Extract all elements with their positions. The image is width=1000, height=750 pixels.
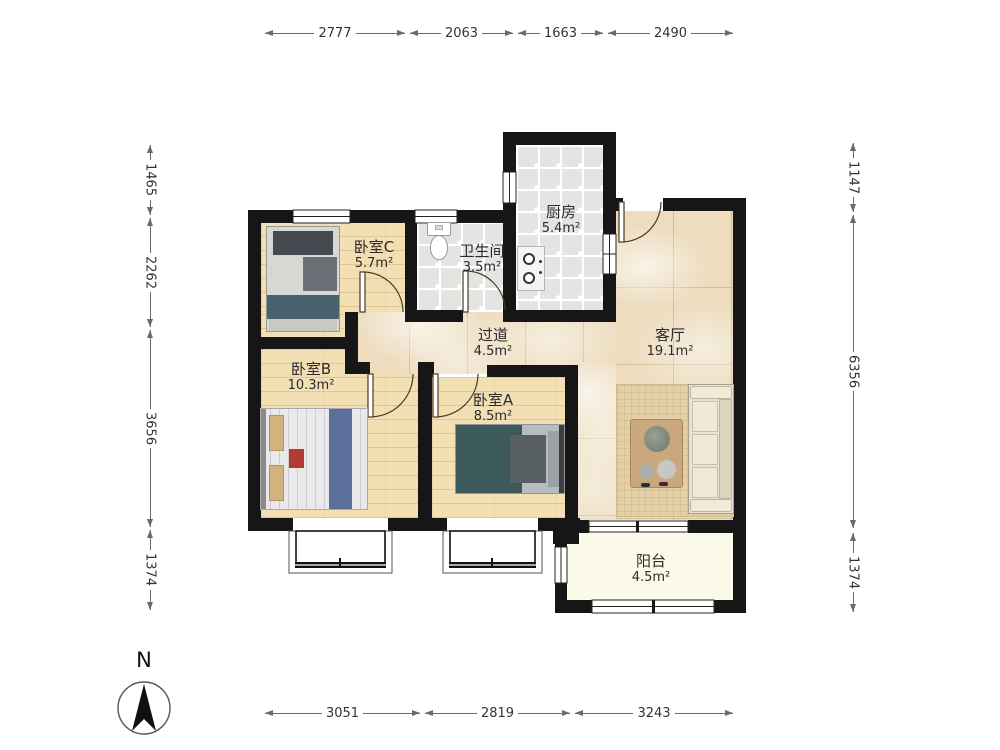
bay-windows-layer — [289, 531, 542, 573]
toilet — [427, 222, 451, 262]
sofa-cushion — [692, 401, 718, 432]
wall-segment — [733, 198, 746, 613]
wall-segment — [555, 531, 567, 547]
dimension-top-3: 1663 — [518, 26, 603, 40]
bed-runner — [329, 409, 352, 509]
wall-segment — [688, 520, 733, 533]
bed-bedroom-a — [455, 424, 565, 494]
room-name: 卫生间 — [459, 242, 504, 260]
compass-needle-icon — [132, 684, 156, 731]
toilet-button — [435, 225, 443, 230]
dimension-line — [691, 33, 733, 34]
dimension-line — [150, 530, 151, 550]
wall-segment — [487, 365, 578, 377]
dimension-line — [150, 448, 151, 527]
wall-segment — [565, 377, 578, 518]
dimension-line — [853, 197, 854, 212]
sofa-armrest — [690, 386, 732, 399]
dimension-top-1: 2777 — [265, 26, 405, 40]
dimension-line — [581, 33, 603, 34]
dimension-line — [265, 33, 314, 34]
dimension-left-4: 1374 — [142, 530, 158, 610]
room-area: 8.5m² — [473, 409, 513, 425]
room-label-bedroom-c: 卧室C 5.7m² — [354, 238, 394, 272]
room-label-living: 客厅 19.1m² — [647, 326, 694, 360]
room-area: 3.5m² — [459, 260, 504, 276]
dimension-value: 1147 — [846, 161, 861, 194]
floorplan-canvas: 厨房 5.4m² 卫生间 3.5m² 卧室C 5.7m² 过道 4.5m² 客厅… — [0, 0, 1000, 750]
wall-segment — [503, 203, 516, 222]
dimension-value: 1374 — [846, 556, 861, 589]
wall-segment — [603, 274, 616, 316]
dimension-line — [853, 592, 854, 612]
dimension-line — [150, 145, 151, 160]
sofa-cushion — [692, 467, 718, 498]
dimension-right-2: 6356 — [845, 215, 861, 528]
dimension-value: 1663 — [544, 26, 577, 41]
dimension-value: 2063 — [445, 26, 478, 41]
dimension-line — [518, 713, 570, 714]
dimension-left-1: 1465 — [142, 145, 158, 215]
bay-window-bedroom-b — [289, 531, 392, 573]
room-name: 卧室C — [354, 238, 394, 256]
room-name: 卧室B — [288, 360, 335, 378]
window-kitchen — [503, 172, 516, 203]
dimension-line — [482, 33, 513, 34]
burner — [523, 253, 535, 265]
window-balcony-left — [555, 547, 567, 583]
knob — [539, 271, 542, 274]
door-bathroom — [463, 271, 505, 312]
dimension-value: 3243 — [637, 706, 670, 721]
coffee-table — [630, 419, 683, 488]
dimension-line — [608, 33, 650, 34]
dimension-line — [853, 215, 854, 352]
room-name: 卧室A — [473, 391, 513, 409]
dimension-value: 3051 — [326, 706, 359, 721]
wall-segment — [555, 600, 592, 613]
bed-cushion — [289, 449, 304, 468]
window-bedroom-c — [293, 210, 350, 223]
bed-throw — [303, 257, 337, 291]
plant — [644, 426, 670, 452]
bed-headboard — [559, 425, 564, 493]
dimension-line — [518, 33, 540, 34]
dimension-value: 2262 — [143, 256, 158, 289]
dimension-top-4: 2490 — [608, 26, 733, 40]
wall-segment — [505, 310, 616, 322]
toilet-bowl — [430, 235, 448, 260]
dimension-value: 2777 — [318, 26, 351, 41]
room-name: 厨房 — [542, 203, 581, 221]
dimension-line — [150, 200, 151, 215]
dimension-left-3: 3656 — [142, 330, 158, 527]
dimension-line — [150, 292, 151, 327]
decor-sphere — [639, 464, 654, 479]
door-bedroom-c — [360, 272, 403, 312]
dimension-line — [675, 713, 733, 714]
wall-segment — [567, 520, 589, 533]
decor-sphere — [657, 460, 676, 479]
dimension-value: 1374 — [143, 553, 158, 586]
dimension-value: 1465 — [143, 163, 158, 196]
door-bedroom-b — [368, 374, 413, 417]
wall-segment — [603, 211, 616, 234]
wall-segment — [418, 365, 432, 518]
wall-segment — [345, 362, 370, 374]
room-area: 4.5m² — [474, 344, 513, 360]
dimension-value: 2819 — [481, 706, 514, 721]
dimension-line — [356, 33, 405, 34]
bed-pillows — [273, 231, 333, 255]
room-label-balcony: 阳台 4.5m² — [632, 552, 671, 586]
sofa-cushion — [692, 434, 718, 465]
dimension-line — [410, 33, 441, 34]
compass-north-label: N — [136, 648, 152, 672]
room-area: 5.4m² — [542, 221, 581, 237]
room-area: 5.7m² — [354, 256, 394, 272]
bed-headboard — [261, 409, 266, 509]
dimension-line — [265, 713, 322, 714]
sofa-back — [719, 399, 732, 499]
door-bedroom-a — [433, 374, 478, 417]
dimension-top-2: 2063 — [410, 26, 513, 40]
burner — [523, 272, 535, 284]
bed-pillow — [269, 465, 284, 501]
room-label-bedroom-b: 卧室B 10.3m² — [288, 360, 335, 394]
window-balcony-bottom — [592, 600, 714, 613]
bed-quilt — [510, 435, 546, 483]
wall-segment — [417, 310, 463, 322]
wall-segment — [603, 145, 616, 198]
decor-item — [641, 483, 650, 487]
dimension-value: 6356 — [846, 355, 861, 388]
room-area: 10.3m² — [288, 378, 335, 394]
bed-footer — [269, 319, 337, 331]
dimension-line — [150, 330, 151, 409]
room-label-bedroom-a: 卧室A 8.5m² — [473, 391, 513, 425]
decor-item — [659, 482, 668, 486]
wall-segment — [503, 145, 516, 172]
dimension-bottom-1: 3051 — [265, 706, 420, 720]
wall-segment — [714, 600, 746, 613]
room-label-bathroom: 卫生间 3.5m² — [459, 242, 504, 276]
bay-window-bedroom-a — [443, 531, 542, 573]
dimension-bottom-2: 2819 — [425, 706, 570, 720]
sliding-door-balcony — [589, 521, 688, 532]
room-area: 19.1m² — [647, 344, 694, 360]
door-entry — [619, 202, 661, 242]
sofa-armrest — [690, 499, 732, 512]
wall-segment — [248, 518, 293, 531]
dimension-line — [853, 143, 854, 158]
wall-segment — [503, 132, 616, 145]
dimension-line — [575, 713, 633, 714]
bed-bedroom-c — [266, 226, 340, 332]
dimension-line — [150, 218, 151, 253]
compass — [118, 682, 170, 734]
room-name: 过道 — [474, 326, 513, 344]
knob — [539, 260, 542, 263]
dimension-value: 2490 — [654, 26, 687, 41]
dimension-right-3: 1374 — [845, 533, 861, 612]
room-label-kitchen: 厨房 5.4m² — [542, 203, 581, 237]
wall-segment — [388, 518, 447, 531]
room-name: 阳台 — [632, 552, 671, 570]
sofa — [688, 384, 734, 514]
bed-pillow — [269, 415, 284, 451]
dimension-right-1: 1147 — [845, 143, 861, 212]
stove — [517, 246, 545, 291]
room-name: 客厅 — [647, 326, 694, 344]
dimension-value: 3656 — [143, 412, 158, 445]
room-label-corridor: 过道 4.5m² — [474, 326, 513, 360]
wall-segment — [248, 337, 358, 349]
dimension-line — [425, 713, 477, 714]
dimension-line — [853, 533, 854, 553]
window-kitchen-living — [603, 234, 616, 274]
wall-segment — [405, 210, 417, 322]
bed-blanket — [267, 295, 339, 319]
dimension-left-2: 2262 — [142, 218, 158, 327]
bed-bedroom-b — [260, 408, 368, 510]
dimension-bottom-3: 3243 — [575, 706, 733, 720]
dimension-line — [150, 590, 151, 610]
dimension-line — [363, 713, 420, 714]
room-area: 4.5m² — [632, 570, 671, 586]
dimension-line — [853, 391, 854, 528]
